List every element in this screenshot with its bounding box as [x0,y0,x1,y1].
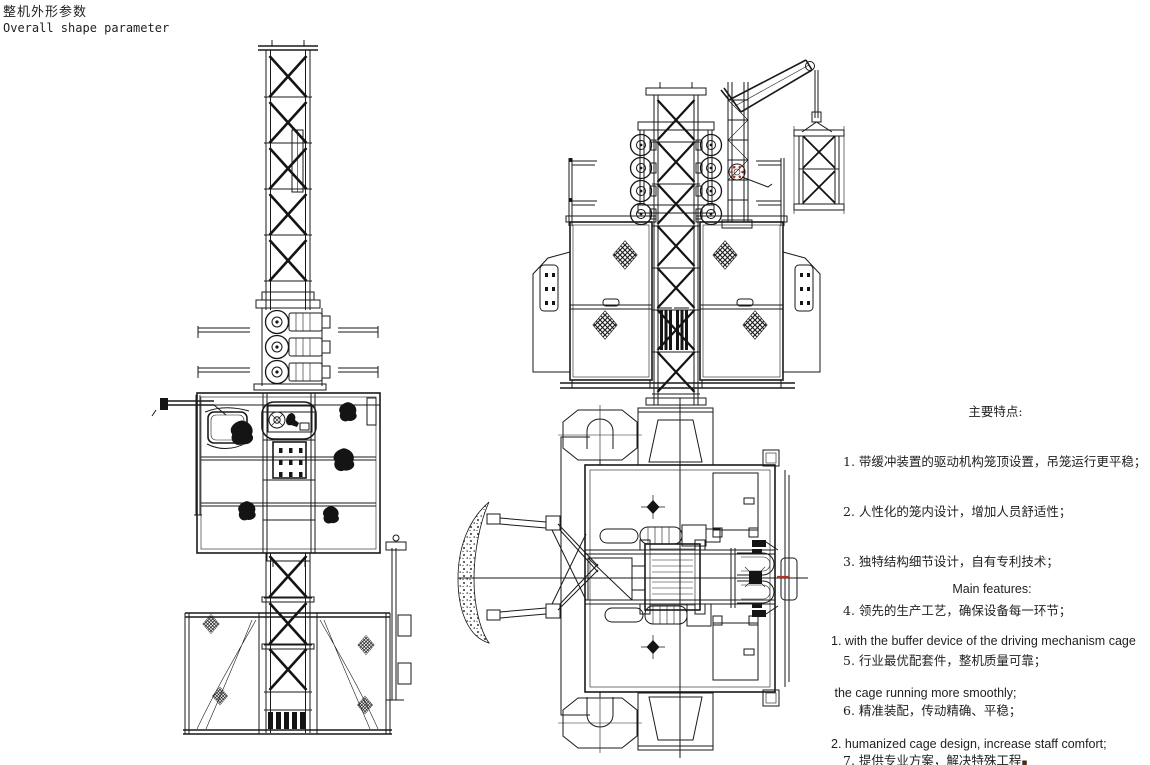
side-box-left [533,252,570,372]
brochure-page: 整机外形参数 Overall shape parameter [0,0,1150,765]
drive-collar [631,122,722,225]
suspended-mast-section [794,122,844,214]
features-en-line: the cage running more smoothly; [831,685,1150,702]
features-zh-item: 2. 人性化的笼内设计，增加人员舒适性； [843,504,1148,521]
features-zh-item: 1. 带缓冲装置的驱动机构笼顶设置，吊笼运行更平稳； [843,454,1148,471]
plan-top-door [638,408,713,465]
plan-anchor-top [558,405,642,465]
front-elevation-drawing [152,40,411,734]
side-box-right [783,252,820,372]
features-en-line: 1. with the buffer device of the driving… [831,633,1150,650]
mast-lower [262,553,314,733]
hoist-winch [729,164,772,187]
features-en-line: 2. humanized cage design, increase staff… [831,736,1150,753]
features-en: Main features: 1. with the buffer device… [831,547,1150,765]
cage-right [696,216,787,380]
cage-left [566,216,656,380]
plan-view-drawing [458,398,808,758]
features-zh-heading: 主要特点: [843,404,1148,421]
cage-front [152,393,380,567]
plan-bottom-door [638,693,713,750]
plan-anchor-bottom [558,692,642,753]
features-en-heading: Main features: [831,581,1150,598]
jib-crane [721,60,821,228]
building-wall-hatch [458,502,489,643]
mast-upper [256,40,320,310]
side-elevation-drawing [533,60,844,405]
drive-unit [254,308,330,390]
